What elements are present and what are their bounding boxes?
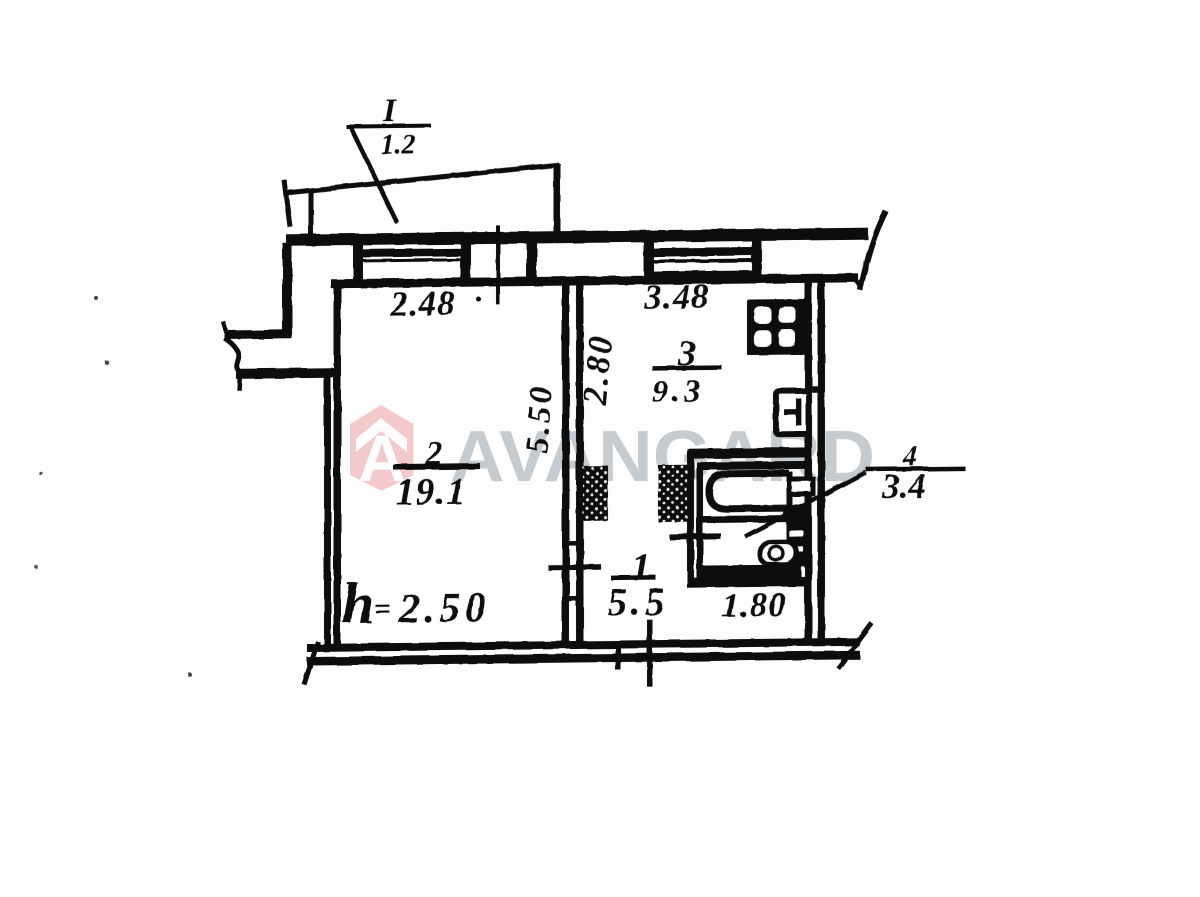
svg-text:9.3: 9.3: [652, 372, 704, 409]
svg-text:5.5: 5.5: [608, 580, 669, 624]
svg-text:5.50: 5.50: [520, 383, 561, 455]
svg-text:3.4: 3.4: [881, 467, 926, 507]
svg-text:3.48: 3.48: [643, 277, 709, 317]
svg-text:h= 2.50: h= 2.50: [342, 569, 490, 636]
svg-text:1.2: 1.2: [381, 129, 416, 160]
svg-text:1.80: 1.80: [721, 585, 786, 625]
svg-text:19.1: 19.1: [396, 471, 467, 514]
svg-text:2.48: 2.48: [389, 284, 455, 324]
svg-text:2.80: 2.80: [577, 332, 620, 407]
